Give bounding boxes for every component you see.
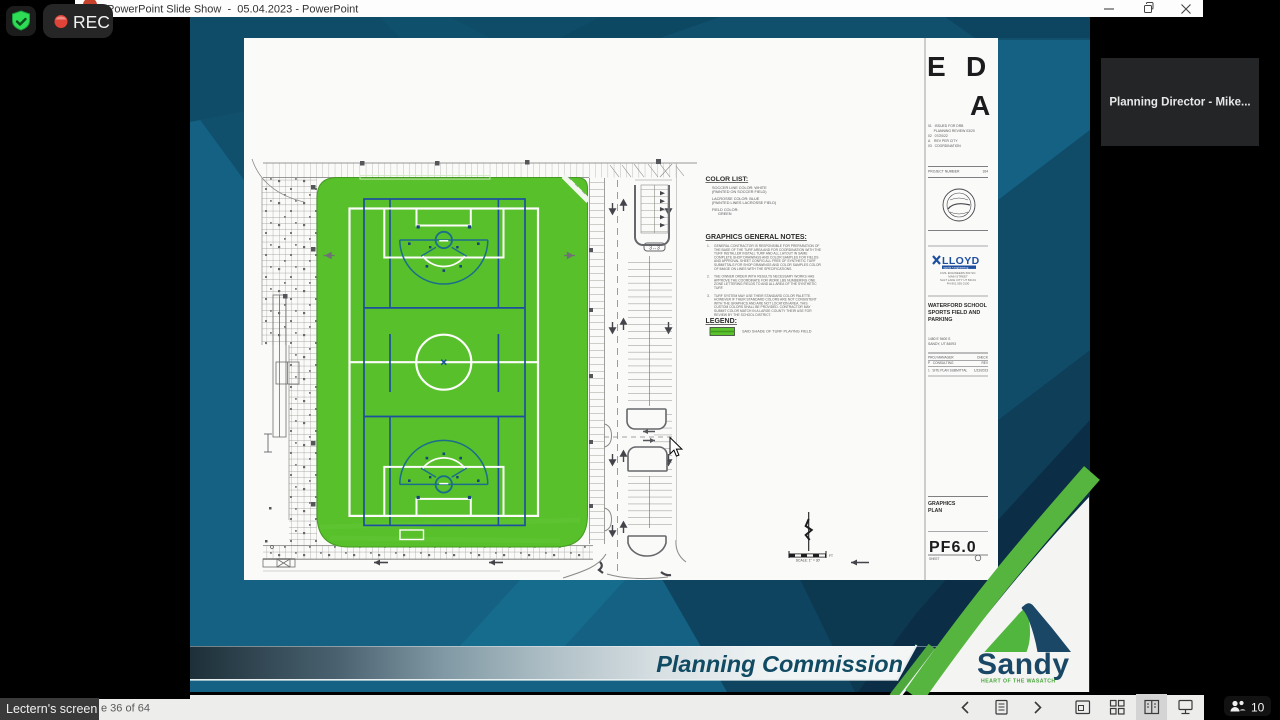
svg-text:LEGEND:: LEGEND: [706,318,738,325]
svg-text:SAID SHADE OF TURF PLAYING FIE: SAID SHADE OF TURF PLAYING FIELD [742,330,812,334]
svg-text:01 ISSUED FOR DRB: 01 ISSUED FOR DRB [928,124,964,128]
svg-text:3.: 3. [707,294,710,298]
svg-text:164: 164 [982,170,988,174]
svg-text:Lectern's screen: Lectern's screen [6,702,97,716]
svg-text:1480 E 9400 S: 1480 E 9400 S [928,337,951,341]
svg-text:REC: REC [73,12,110,32]
svg-text:02 07/20/22: 02 07/20/22 [928,134,948,138]
svg-text:10: 10 [1251,701,1265,715]
svg-text:e 36 of 64: e 36 of 64 [101,703,150,715]
svg-text:PH 801.555.0100: PH 801.555.0100 [947,282,970,286]
svg-text:SHEET: SHEET [929,557,940,561]
svg-text:SCALE: 1" = 30': SCALE: 1" = 30' [796,559,821,563]
svg-text:COLOR LIST:: COLOR LIST: [706,176,749,183]
svg-text:sports • engineering: sports • engineering [944,265,969,269]
svg-text:REV: REV [981,361,988,365]
svg-text:SANDY, UT 84093: SANDY, UT 84093 [928,342,956,346]
svg-text:PROJ MANAGER: PROJ MANAGER [928,356,954,360]
svg-text:GREEN: GREEN [718,212,732,216]
svg-text:SPORTS FIELD AND: SPORTS FIELD AND [928,310,980,316]
svg-text:OF IMAGE ON LINES WITH THE SPE: OF IMAGE ON LINES WITH THE SPECIFICATION… [714,267,792,271]
svg-text:D: D [966,51,986,82]
svg-text:2.: 2. [707,275,710,279]
svg-text:PF6.0: PF6.0 [929,539,977,556]
svg-text:CHECK: CHECK [977,356,989,360]
svg-text:PLANNING REVIEW 03/20: PLANNING REVIEW 03/20 [928,129,975,133]
svg-text:PowerPoint Slide Show - 05.0: PowerPoint Slide Show - 05.04.2023 - Pow… [107,4,358,16]
svg-text:Sandy: Sandy [977,648,1070,681]
svg-text:A: A [970,90,990,121]
svg-text:03 COORDINATION: 03 COORDINATION [928,144,961,148]
svg-text:PARKING: PARKING [928,317,952,323]
svg-text:A REV PER CITY: A REV PER CITY [928,139,958,143]
svg-text:1/23/2023: 1/23/2023 [974,369,988,373]
svg-text:E: E [927,51,946,82]
svg-text:GRAPHICS: GRAPHICS [928,501,956,507]
svg-text:PLAN: PLAN [928,508,942,514]
svg-text:TURF.: TURF. [714,286,723,290]
svg-text:(PAINTED LINES LACROSSE FIELD): (PAINTED LINES LACROSSE FIELD) [712,201,777,205]
svg-text:HEART OF THE WASATCH: HEART OF THE WASATCH [981,679,1056,685]
svg-text:(PAINTED ON SOCCER FIELD): (PAINTED ON SOCCER FIELD) [712,190,767,194]
svg-text:REVIEW BY THE SCHOOL DISTRICT.: REVIEW BY THE SCHOOL DISTRICT. [714,313,771,317]
svg-text:GRAPHICS GENERAL NOTES:: GRAPHICS GENERAL NOTES: [706,234,807,241]
svg-text:1.: 1. [707,244,710,248]
svg-text:P CONSULTING: P CONSULTING [928,361,954,365]
svg-text:Planning Director - Mike...: Planning Director - Mike... [1109,97,1250,109]
svg-text:3↔3: 3↔3 [649,246,660,252]
svg-text:Planning Commission: Planning Commission [656,651,903,677]
svg-text:PROJECT NUMBER: PROJECT NUMBER [928,170,960,174]
svg-text:ZONE LETTERING FIELDS TO AND A: ZONE LETTERING FIELDS TO AND ALL AREA OF… [714,282,817,286]
svg-text:FT: FT [829,554,833,558]
svg-text:1 SITE PLAN SUBMITTAL: 1 SITE PLAN SUBMITTAL [928,369,967,373]
svg-text:WATERFORD SCHOOL: WATERFORD SCHOOL [928,303,988,309]
